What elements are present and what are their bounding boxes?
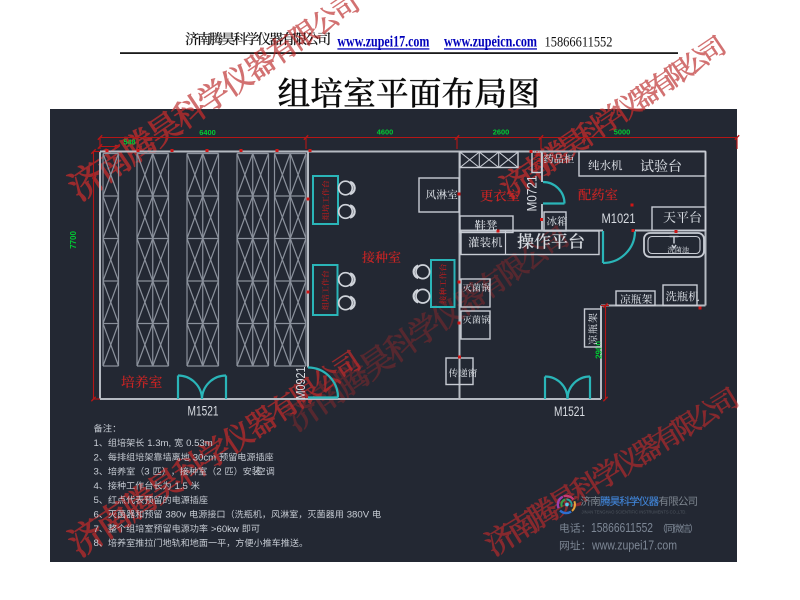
- svg-text:6400: 6400: [199, 128, 215, 137]
- svg-text:3: 3: [94, 467, 99, 478]
- svg-text:M0921: M0921: [294, 366, 308, 399]
- svg-text:1: 1: [94, 438, 99, 449]
- svg-text:548: 548: [124, 138, 136, 147]
- svg-text:M1521: M1521: [188, 404, 219, 419]
- svg-text:2: 2: [216, 467, 221, 478]
- svg-text:>60kw: >60kw: [211, 524, 239, 535]
- svg-text:M1021: M1021: [602, 211, 636, 226]
- svg-text:4: 4: [94, 481, 100, 492]
- svg-text:7700: 7700: [69, 231, 78, 249]
- svg-text:7: 7: [94, 524, 99, 535]
- svg-text:8: 8: [94, 538, 99, 549]
- svg-text:www.zupei17.com: www.zupei17.com: [591, 538, 677, 553]
- svg-text:2: 2: [94, 452, 99, 463]
- svg-text:15866611552: 15866611552: [545, 35, 613, 51]
- svg-text:15866611552: 15866611552: [591, 520, 653, 535]
- svg-text:www.zupei17.com: www.zupei17.com: [337, 34, 429, 51]
- svg-text:3: 3: [144, 467, 149, 478]
- svg-text:30cm: 30cm: [193, 452, 216, 463]
- svg-text:380v: 380v: [165, 510, 186, 521]
- svg-text:6: 6: [94, 510, 99, 521]
- svg-text:380V: 380V: [347, 510, 370, 521]
- svg-text:1.3m,: 1.3m,: [147, 438, 171, 449]
- svg-text:2600: 2600: [493, 128, 509, 137]
- svg-text:M1521: M1521: [554, 404, 585, 419]
- svg-text:0.53m: 0.53m: [186, 438, 213, 449]
- svg-text:JINAN TENGHAO SCIENTIFIC INSTR: JINAN TENGHAO SCIENTIFIC INSTRUMENTS CO.…: [582, 510, 687, 515]
- svg-text:www.zupeicn.com: www.zupeicn.com: [444, 34, 537, 51]
- svg-text:1.5: 1.5: [175, 481, 188, 492]
- svg-text:5000: 5000: [614, 128, 630, 137]
- svg-text:M0721: M0721: [525, 176, 540, 212]
- svg-text:4600: 4600: [377, 128, 393, 137]
- svg-text:5: 5: [94, 495, 99, 506]
